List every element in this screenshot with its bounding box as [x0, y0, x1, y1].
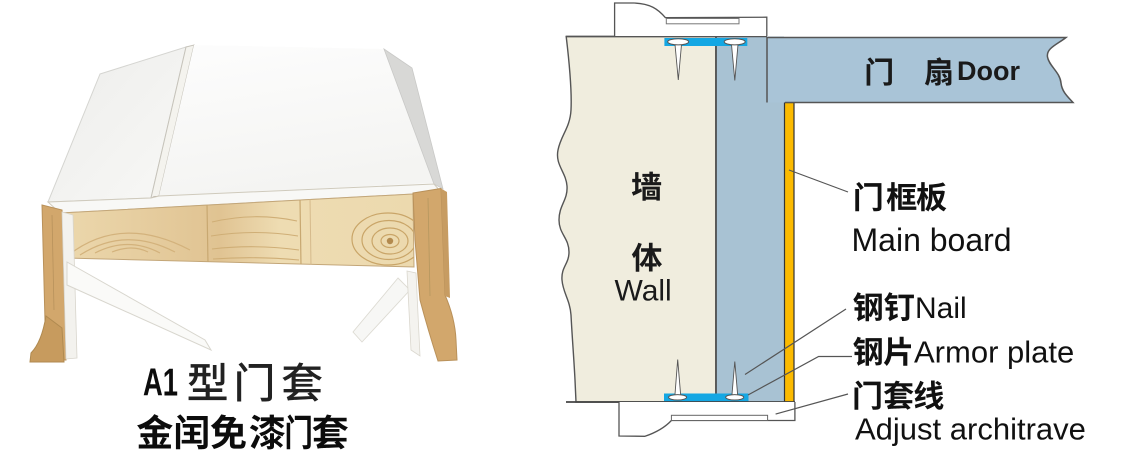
- svg-text:Main board: Main board: [852, 222, 1012, 258]
- svg-text:Door: Door: [957, 56, 1020, 86]
- svg-text:Wall: Wall: [615, 275, 672, 308]
- svg-text:Armor plate: Armor plate: [914, 335, 1074, 370]
- svg-text:Adjust architrave: Adjust architrave: [855, 412, 1086, 447]
- svg-text:A1: A1: [143, 362, 178, 405]
- svg-text:Nail: Nail: [915, 292, 967, 325]
